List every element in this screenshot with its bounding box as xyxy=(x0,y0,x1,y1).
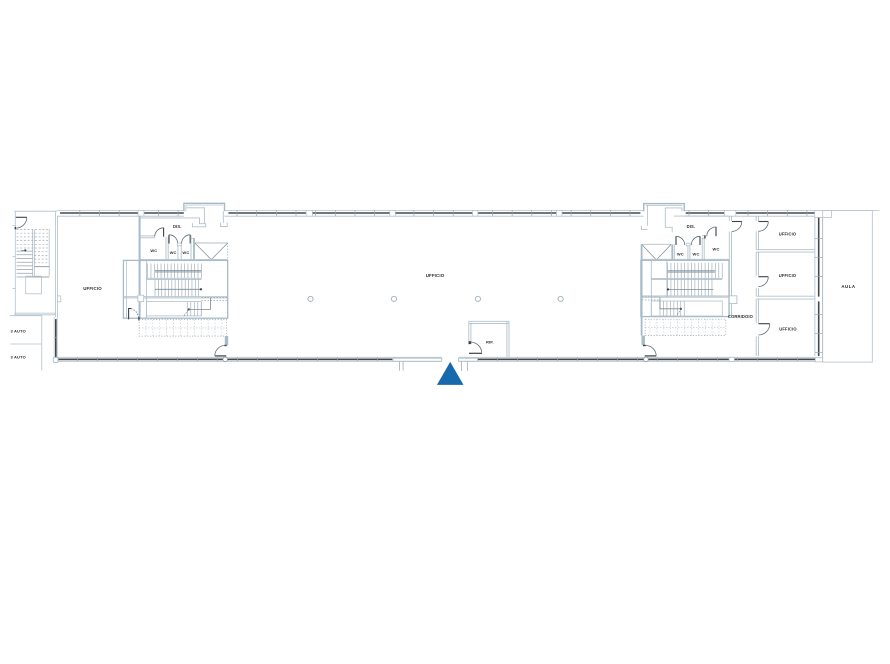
svg-text:3 AUTO: 3 AUTO xyxy=(11,354,26,359)
svg-text:UFFICIO: UFFICIO xyxy=(779,231,797,236)
svg-text:DIS.: DIS. xyxy=(173,224,182,229)
svg-text:WC: WC xyxy=(677,251,684,256)
svg-text:WC: WC xyxy=(713,247,720,252)
svg-text:WC: WC xyxy=(693,251,700,256)
svg-text:WC: WC xyxy=(182,250,189,255)
svg-text:AULA: AULA xyxy=(841,284,856,289)
svg-text:CORRIDOIO: CORRIDOIO xyxy=(728,314,754,319)
svg-text:RIP.: RIP. xyxy=(486,340,494,345)
svg-text:3 AUTO: 3 AUTO xyxy=(11,328,26,333)
svg-text:DIS.: DIS. xyxy=(687,224,696,229)
svg-text:UFFICIO: UFFICIO xyxy=(779,327,797,332)
svg-text:UFFICIO: UFFICIO xyxy=(779,273,797,278)
svg-text:WC: WC xyxy=(150,248,157,253)
svg-text:UFFICIO: UFFICIO xyxy=(83,286,102,291)
svg-text:WC: WC xyxy=(170,250,177,255)
svg-text:UFFICIO: UFFICIO xyxy=(426,273,445,278)
